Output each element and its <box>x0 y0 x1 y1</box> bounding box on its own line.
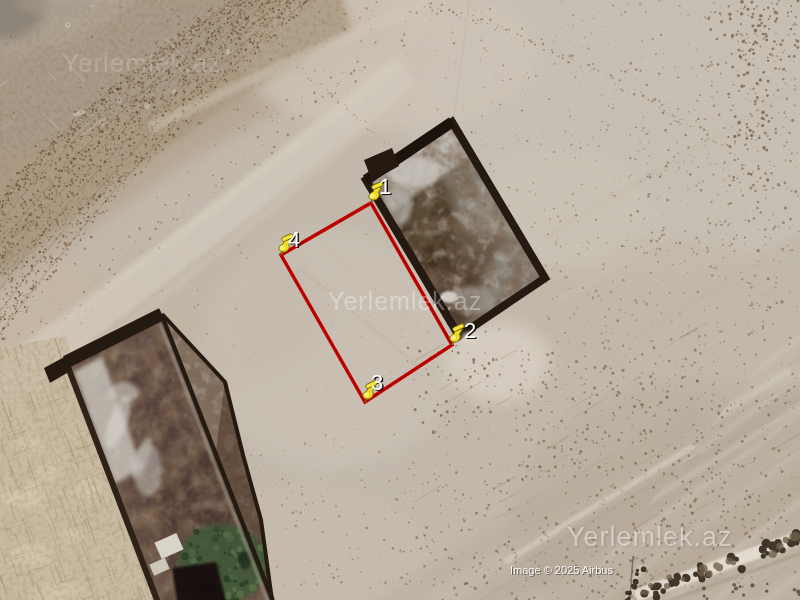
svg-text:Yerlemlek.az: Yerlemlek.az <box>62 48 222 78</box>
svg-text:3: 3 <box>371 370 383 395</box>
svg-text:Image © 2025 Airbus: Image © 2025 Airbus <box>510 564 613 576</box>
svg-text:Yerlemlek.az: Yerlemlek.az <box>328 287 482 315</box>
svg-text:Yerlemlek.az: Yerlemlek.az <box>567 522 733 552</box>
svg-text:2: 2 <box>464 318 476 343</box>
svg-text:1: 1 <box>379 174 391 199</box>
svg-text:4: 4 <box>288 227 300 252</box>
